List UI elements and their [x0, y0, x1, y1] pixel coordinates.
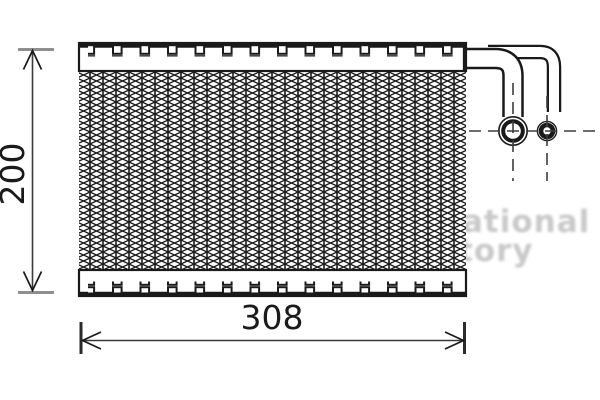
bottom-bar-notches [88, 282, 458, 293]
top-bar-notches [88, 46, 458, 57]
fin-core [79, 71, 466, 270]
width-dimension-label: 308 [212, 301, 332, 335]
technical-drawing-canvas: ational tory 200 308 [0, 0, 600, 400]
inlet-pipe [460, 59, 513, 118]
top-header-bar [79, 43, 466, 71]
bottom-header-bar [79, 270, 466, 296]
centerlines [469, 83, 597, 181]
evaporator-drawing [0, 0, 600, 400]
fin-core-mesh [79, 71, 466, 270]
height-dimension-label: 200 [0, 134, 30, 214]
